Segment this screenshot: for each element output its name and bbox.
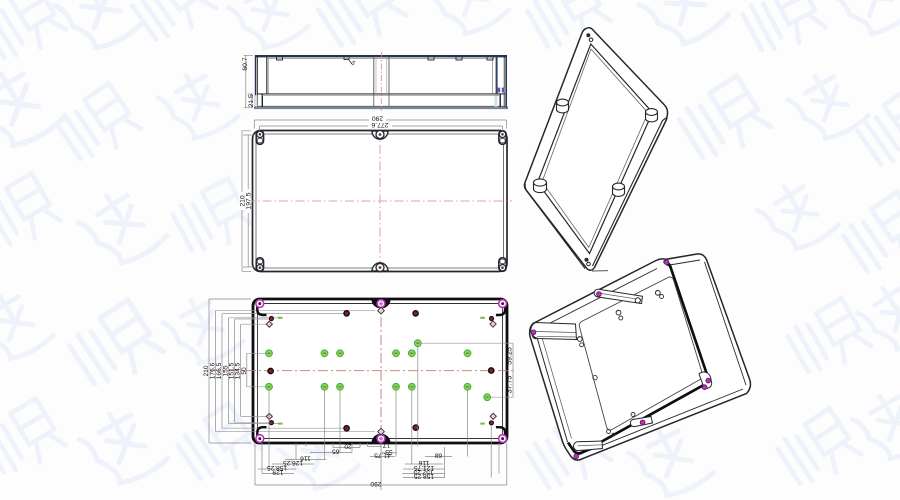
svg-text:60.7: 60.7 [242,57,249,70]
svg-text:59.25: 59.25 [507,347,514,365]
svg-text:20: 20 [344,443,352,450]
svg-text:290: 290 [372,115,384,122]
svg-text:68: 68 [435,452,443,459]
svg-text:41.75: 41.75 [374,452,391,459]
svg-text:65: 65 [332,448,340,455]
svg-text:50: 50 [241,367,248,375]
svg-text:197.5: 197.5 [246,192,253,209]
svg-text:129: 129 [272,469,283,476]
svg-text:158.25: 158.25 [414,473,435,480]
svg-text:37.75: 37.75 [507,376,514,394]
svg-text:290: 290 [370,480,381,487]
svg-text:277.6: 277.6 [371,121,388,128]
svg-text:21.5: 21.5 [248,94,255,107]
svg-text:17: 17 [383,442,391,449]
